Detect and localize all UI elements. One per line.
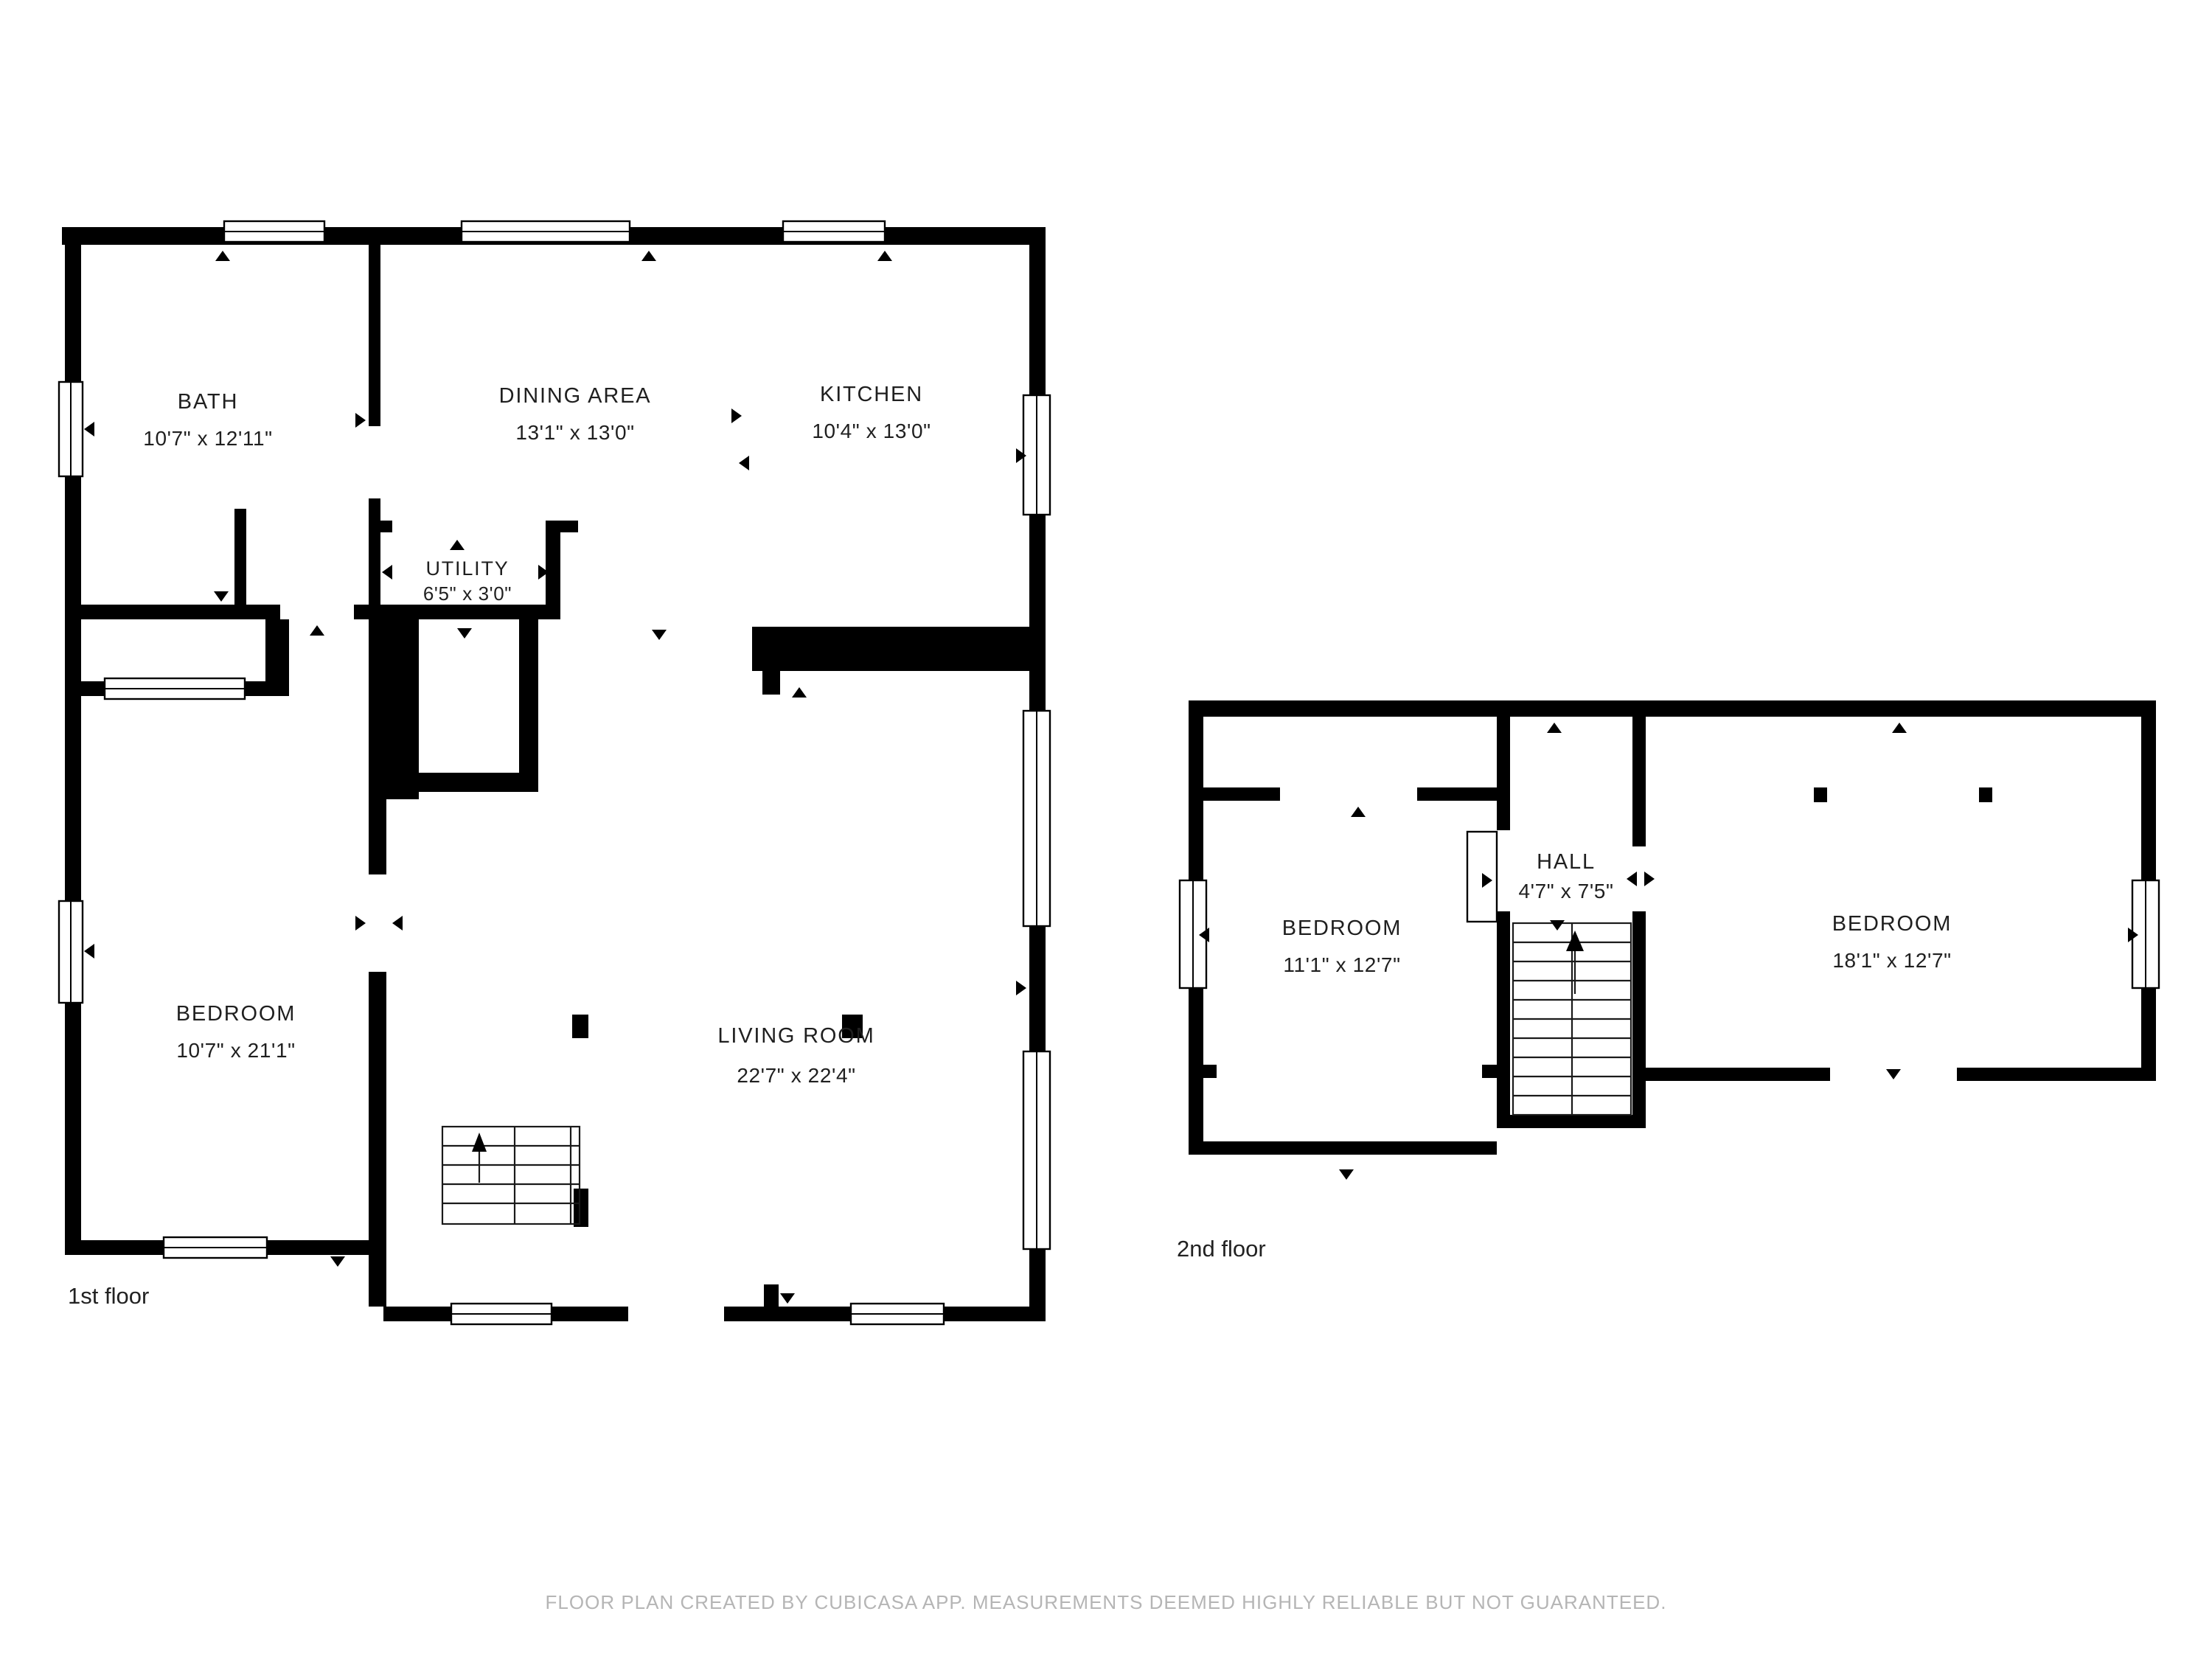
room-dims-bedroom-left: 11'1" x 12'7" (1283, 953, 1400, 976)
door-arrow-icon (1547, 723, 1562, 733)
door-arrow-icon (1550, 920, 1565, 931)
door-arrow-icon (310, 625, 324, 636)
door-arrow-icon (392, 916, 403, 931)
wall-segment (369, 799, 386, 874)
door-arrow-icon (1351, 807, 1366, 817)
wall-post (572, 1015, 588, 1038)
stairs-up-arrow-icon (472, 1133, 487, 1152)
wall-segment (1202, 787, 1280, 801)
wall-segment (65, 605, 280, 619)
wall-segment (1203, 1065, 1217, 1078)
window (224, 221, 324, 242)
floor-label-1st: 1st floor (68, 1283, 149, 1309)
window (451, 1304, 552, 1324)
room-label-bedroom-left: BEDROOM (1282, 917, 1402, 940)
door-arrow-icon (84, 422, 94, 437)
wall-segment (1497, 717, 1510, 830)
wall-segment (65, 681, 105, 696)
wall-post (1814, 787, 1827, 802)
wall-segment (1482, 1065, 1497, 1078)
wall-segment (944, 1307, 1046, 1321)
room-label-hall: HALL (1537, 850, 1596, 874)
window (851, 1304, 944, 1324)
wall-segment (1189, 700, 2156, 717)
wall-segment (234, 509, 246, 605)
wall-segment (546, 521, 560, 619)
wall-segment (369, 245, 380, 426)
door-arrow-icon (382, 565, 392, 580)
floorplan-canvas: BATH 10'7" x 12'11" DINING AREA 13'1" x … (0, 0, 2212, 1659)
wall-segment (1189, 1141, 1497, 1155)
window (1023, 1051, 1050, 1249)
labels-2nd-floor: BEDROOM 11'1" x 12'7" HALL 4'7" x 7'5" B… (1282, 850, 1952, 976)
wall-segment (245, 681, 289, 696)
floorplan-1st-floor: BATH 10'7" x 12'11" DINING AREA 13'1" x … (59, 221, 1050, 1324)
room-label-kitchen: KITCHEN (820, 383, 923, 406)
door-arrow-icon (330, 1256, 345, 1267)
room-dims-hall: 4'7" x 7'5" (1518, 880, 1613, 902)
wall-segment (1632, 911, 1646, 1128)
door-arrow-icon (355, 413, 366, 428)
door-arrow-icon (641, 251, 656, 261)
room-label-living-room: LIVING ROOM (717, 1024, 874, 1048)
room-dims-bedroom-right: 18'1" x 12'7" (1832, 949, 1951, 972)
wall-segment (1632, 1068, 1830, 1081)
door-arrow-icon (1892, 723, 1907, 733)
door-arrow-icon (731, 408, 742, 423)
door-arrow-icon (1016, 981, 1026, 995)
window (59, 901, 83, 1003)
room-label-dining: DINING AREA (499, 384, 652, 408)
window (164, 1237, 267, 1258)
door-arrow-icon (877, 251, 892, 261)
wall-segment (574, 1189, 588, 1227)
room-label-bedroom: BEDROOM (176, 1002, 296, 1026)
door-arrow-icon (450, 540, 465, 550)
door-arrow-icon (355, 916, 366, 931)
door-arrow-icon (652, 630, 667, 640)
wall-segment (404, 773, 538, 792)
wall-segment (519, 619, 538, 773)
room-dims-kitchen: 10'4" x 13'0" (812, 420, 931, 442)
floorplan-2nd-floor: BEDROOM 11'1" x 12'7" HALL 4'7" x 7'5" B… (1177, 700, 2159, 1262)
door-arrows-2nd-floor (1199, 723, 2138, 1180)
door-arrow-icon (739, 456, 749, 470)
wall-segment (383, 1307, 451, 1321)
room-dims-utility: 6'5" x 3'0" (423, 582, 512, 605)
stairs-up-arrow-icon (1566, 931, 1584, 951)
room-dims-dining: 13'1" x 13'0" (515, 421, 634, 444)
door-arrow-icon (214, 591, 229, 602)
window (1023, 711, 1050, 926)
footer-disclaimer: FLOOR PLAN CREATED BY CUBICASA APP. MEAS… (546, 1591, 1667, 1613)
door-arrow-icon (1627, 872, 1637, 886)
wall-post (1979, 787, 1992, 802)
room-dims-bath: 10'7" x 12'11" (143, 427, 272, 450)
room-dims-living-room: 22'7" x 22'4" (737, 1064, 855, 1087)
wall-segment (369, 498, 380, 605)
window (783, 221, 885, 242)
door-arrow-icon (1886, 1069, 1901, 1079)
staircase-1st-floor (442, 1127, 580, 1224)
door-arrow-icon (1644, 872, 1655, 886)
room-label-bath: BATH (178, 390, 238, 414)
wall-segment (552, 1307, 628, 1321)
door-arrow-icon (792, 687, 807, 698)
window (462, 221, 630, 242)
wall-segment (724, 1307, 851, 1321)
door-arrow-icon (1339, 1169, 1354, 1180)
stair-outline (442, 1127, 580, 1224)
room-label-utility: UTILITY (425, 557, 509, 580)
window (105, 678, 245, 699)
door-arrow-icon (457, 628, 472, 639)
wall-segment (1417, 787, 1497, 801)
door-arrow-icon (780, 1293, 795, 1304)
wall-segment (369, 619, 419, 799)
door-arrow-icon (215, 251, 230, 261)
wall-segment (762, 671, 780, 695)
window (1023, 395, 1050, 515)
window (59, 382, 83, 476)
door-arrow-icon (84, 944, 94, 959)
room-label-bedroom-right: BEDROOM (1832, 912, 1952, 936)
wall-segment (1497, 911, 1510, 1128)
floor-label-2nd: 2nd floor (1177, 1236, 1266, 1262)
room-dims-bedroom: 10'7" x 21'1" (176, 1039, 295, 1062)
wall-segment (369, 521, 392, 532)
wall-segment (1497, 1115, 1646, 1128)
wall-segment (1957, 1068, 2156, 1081)
staircase-2nd-floor (1513, 923, 1631, 1115)
wall-segment (764, 1284, 779, 1307)
wall-segment (1632, 717, 1646, 846)
wall-segment (369, 605, 560, 619)
wall-segment (369, 972, 386, 1307)
